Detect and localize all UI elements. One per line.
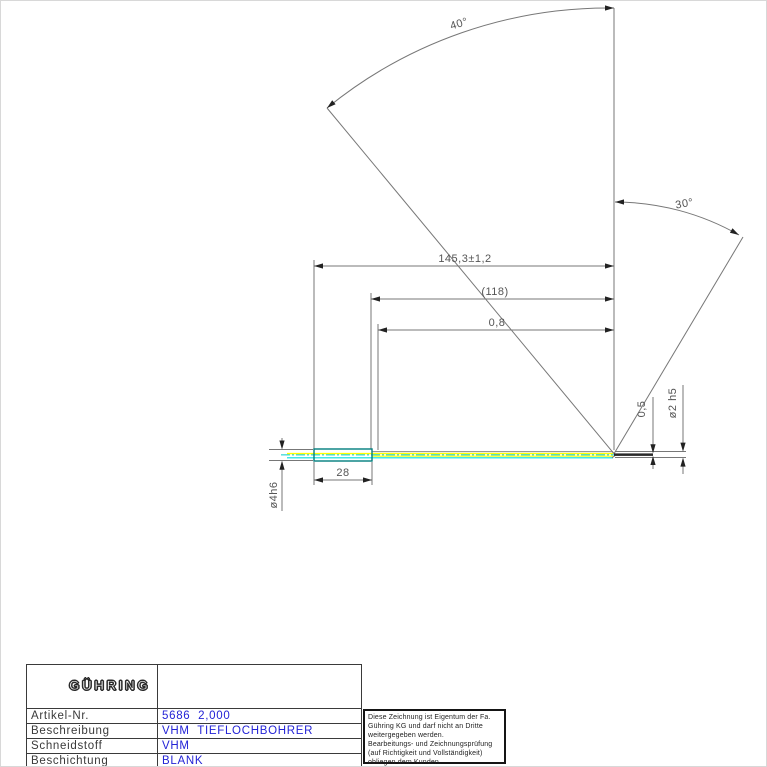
guehring-logo: GÜHRING <box>27 665 158 709</box>
dim-shank-length-label: 28 <box>336 467 349 479</box>
ownership-disclaimer-note: Diese Zeichnung ist Eigentum der Fa. Güh… <box>363 709 506 764</box>
dim-cutting-diameter-label: ø2 h5 <box>667 388 679 419</box>
tip-core <box>614 453 653 456</box>
drawing-sheet: 40° 30° 145,3±1,2 (118) 0,8 28 ø4h6 0,5 … <box>0 0 767 767</box>
dim-shank-diameter-label: ø4h6 <box>268 481 280 508</box>
logo-row-empty-cell <box>158 665 362 709</box>
dim-overall-length-label: 145,3±1,2 <box>438 253 491 265</box>
technical-drawing-canvas: 40° 30° 145,3±1,2 (118) 0,8 28 ø4h6 0,5 … <box>1 1 767 767</box>
cutting-material-value: VHM <box>158 739 362 754</box>
title-block: GÜHRING Artikel-Nr. 5686 2,000 Beschreib… <box>26 664 362 767</box>
cutting-material-label: Schneidstoff <box>27 739 158 754</box>
angle-30-label: 30° <box>675 197 695 212</box>
article-number-value: 5686 2,000 <box>158 709 362 724</box>
table-row: Beschichtung BLANK <box>27 754 362 767</box>
angle-40-label: 40° <box>449 16 470 33</box>
description-label: Beschreibung <box>27 724 158 739</box>
table-row: Artikel-Nr. 5686 2,000 <box>27 709 362 724</box>
guehring-logo-text: GÜHRING <box>69 678 150 693</box>
dimension-labels: 40° 30° 145,3±1,2 (118) 0,8 28 ø4h6 0,5 … <box>268 16 694 509</box>
drill-body <box>281 449 653 461</box>
extension-lines <box>269 8 686 485</box>
dim-core-diameter-label: 0,5 <box>636 401 648 418</box>
article-number-label: Artikel-Nr. <box>27 709 158 724</box>
logo-row: GÜHRING <box>27 665 362 709</box>
angle-construction <box>327 8 743 454</box>
coating-value: BLANK <box>158 754 362 767</box>
dim-flute-length-label: (118) <box>481 286 508 298</box>
description-value: VHM TIEFLOCHBOHRER <box>158 724 362 739</box>
coating-label: Beschichtung <box>27 754 158 767</box>
table-row: Schneidstoff VHM <box>27 739 362 754</box>
table-row: Beschreibung VHM TIEFLOCHBOHRER <box>27 724 362 739</box>
dim-step-length-label: 0,8 <box>489 317 506 329</box>
